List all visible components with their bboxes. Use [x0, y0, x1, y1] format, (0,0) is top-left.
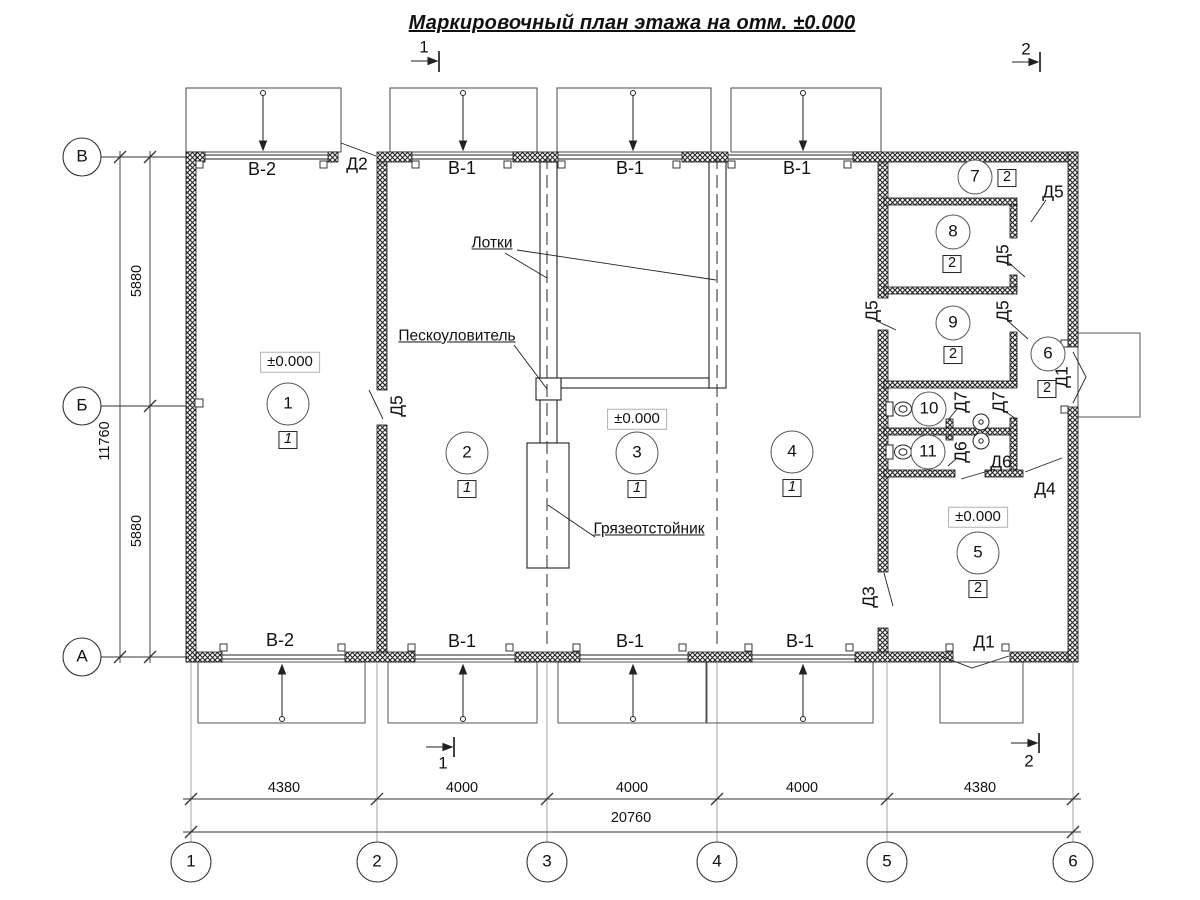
room-7-floor-type: 2	[997, 169, 1016, 187]
label-trays: Лотки	[472, 234, 513, 251]
window-label-top-b2: В-2	[248, 160, 276, 180]
room-4-number: 4	[787, 443, 796, 462]
dim-h-1: 4380	[268, 781, 300, 797]
axis-col-6: 6	[1068, 853, 1077, 872]
door-label-d5-room7: Д5	[1042, 182, 1064, 201]
axis-col-5: 5	[882, 853, 891, 872]
dim-h-5: 4380	[964, 781, 996, 797]
axis-col-3: 3	[542, 853, 551, 872]
room-9-number: 9	[948, 314, 957, 333]
sand-trap-box	[536, 378, 561, 400]
door-label-d5-room9-corridor: Д5	[993, 300, 1012, 322]
door-label-d4: Д4	[1034, 479, 1056, 498]
door-label-d5-axis2: Д5	[387, 395, 406, 417]
dim-h-4: 4000	[786, 781, 818, 797]
room-1-number: 1	[283, 395, 292, 414]
elevation-mark-room3: ±0.000	[607, 409, 667, 430]
label-mud-settler: Грязеотстойник	[593, 520, 704, 537]
tray-horizontal	[561, 378, 709, 388]
room-3-floor-type: 1	[627, 480, 646, 498]
tray-left	[540, 162, 557, 378]
window-label-bottom-b1: В-1	[616, 632, 644, 652]
dim-v-overall: 11760	[98, 421, 114, 460]
room-7-number: 7	[970, 168, 979, 187]
axis-col-2: 2	[372, 853, 381, 872]
plan-linework	[0, 0, 1200, 900]
axis-row-b: Б	[76, 397, 87, 416]
room-2-floor-type: 1	[457, 480, 476, 498]
room-9-floor-type: 2	[943, 346, 962, 364]
axis-centerlines	[547, 156, 717, 650]
room-5-number: 5	[973, 544, 982, 563]
window-label-bottom-b1: В-1	[448, 632, 476, 652]
room-10-number: 10	[920, 400, 939, 419]
label-sand-trap: Пескоуловитель	[398, 327, 515, 344]
dim-v-top: 5880	[130, 265, 146, 297]
room-8-floor-type: 2	[942, 255, 961, 273]
door-label-d5-room9-hall: Д5	[862, 300, 881, 322]
door-label-d7-lobby: Д7	[989, 391, 1008, 413]
axis-row-a: А	[76, 648, 87, 667]
room-3-number: 3	[632, 444, 641, 463]
door-label-d6-lobby: Д6	[990, 452, 1012, 471]
drawing-title: Маркировочный план этажа на отм. ±0.000	[409, 12, 856, 34]
door-label-d5-room8: Д5	[993, 244, 1012, 266]
section-mark-1-top: 1	[419, 39, 428, 58]
room-6-floor-type: 2	[1037, 380, 1056, 398]
window-label-bottom-b2: В-2	[266, 631, 294, 651]
floor-plan-drawing: Маркировочный план этажа на отм. ±0.000 …	[0, 0, 1200, 900]
room-8-number: 8	[948, 223, 957, 242]
window-label-top-b1: В-1	[783, 159, 811, 179]
axis-col-4: 4	[712, 853, 721, 872]
window-label-top-b1: В-1	[448, 159, 476, 179]
wc-cistern	[886, 402, 893, 416]
door-label-d3: Д3	[859, 586, 878, 608]
axis-col-1: 1	[186, 853, 195, 872]
dim-v-bottom: 5880	[130, 515, 146, 547]
entry-arrows-top	[260, 91, 807, 151]
drainage-trays	[527, 162, 726, 568]
room-2-number: 2	[462, 444, 471, 463]
dim-h-overall: 20760	[611, 811, 651, 827]
section-mark-2-bottom: 2	[1024, 753, 1033, 772]
room-4-floor-type: 1	[782, 479, 801, 497]
axis-row-v: В	[76, 148, 87, 167]
entry-arrows-bottom	[279, 665, 807, 722]
door-label-d6-stall: Д6	[951, 441, 970, 463]
left-dimension-lines	[101, 151, 186, 663]
wc-cistern	[886, 445, 893, 459]
door-label-d2: Д2	[346, 154, 368, 173]
dim-h-3: 4000	[616, 781, 648, 797]
room-5-floor-type: 2	[968, 580, 987, 598]
door-label-d7-stall: Д7	[951, 391, 970, 413]
room-6-number: 6	[1043, 345, 1052, 364]
window-label-bottom-b1: В-1	[786, 632, 814, 652]
elevation-mark-room5: ±0.000	[948, 507, 1008, 528]
room-1-floor-type: 1	[278, 431, 297, 449]
section-mark-2-top: 2	[1021, 41, 1030, 60]
entry-canopies	[186, 88, 881, 152]
axis-bubbles	[63, 138, 1093, 882]
dim-h-2: 4000	[446, 781, 478, 797]
window-label-top-b1: В-1	[616, 159, 644, 179]
section-mark-1-bottom: 1	[438, 755, 447, 774]
elevation-mark-room1: ±0.000	[260, 352, 320, 373]
door-label-d1-bottom: Д1	[973, 632, 995, 651]
room-11-number: 11	[919, 443, 937, 462]
